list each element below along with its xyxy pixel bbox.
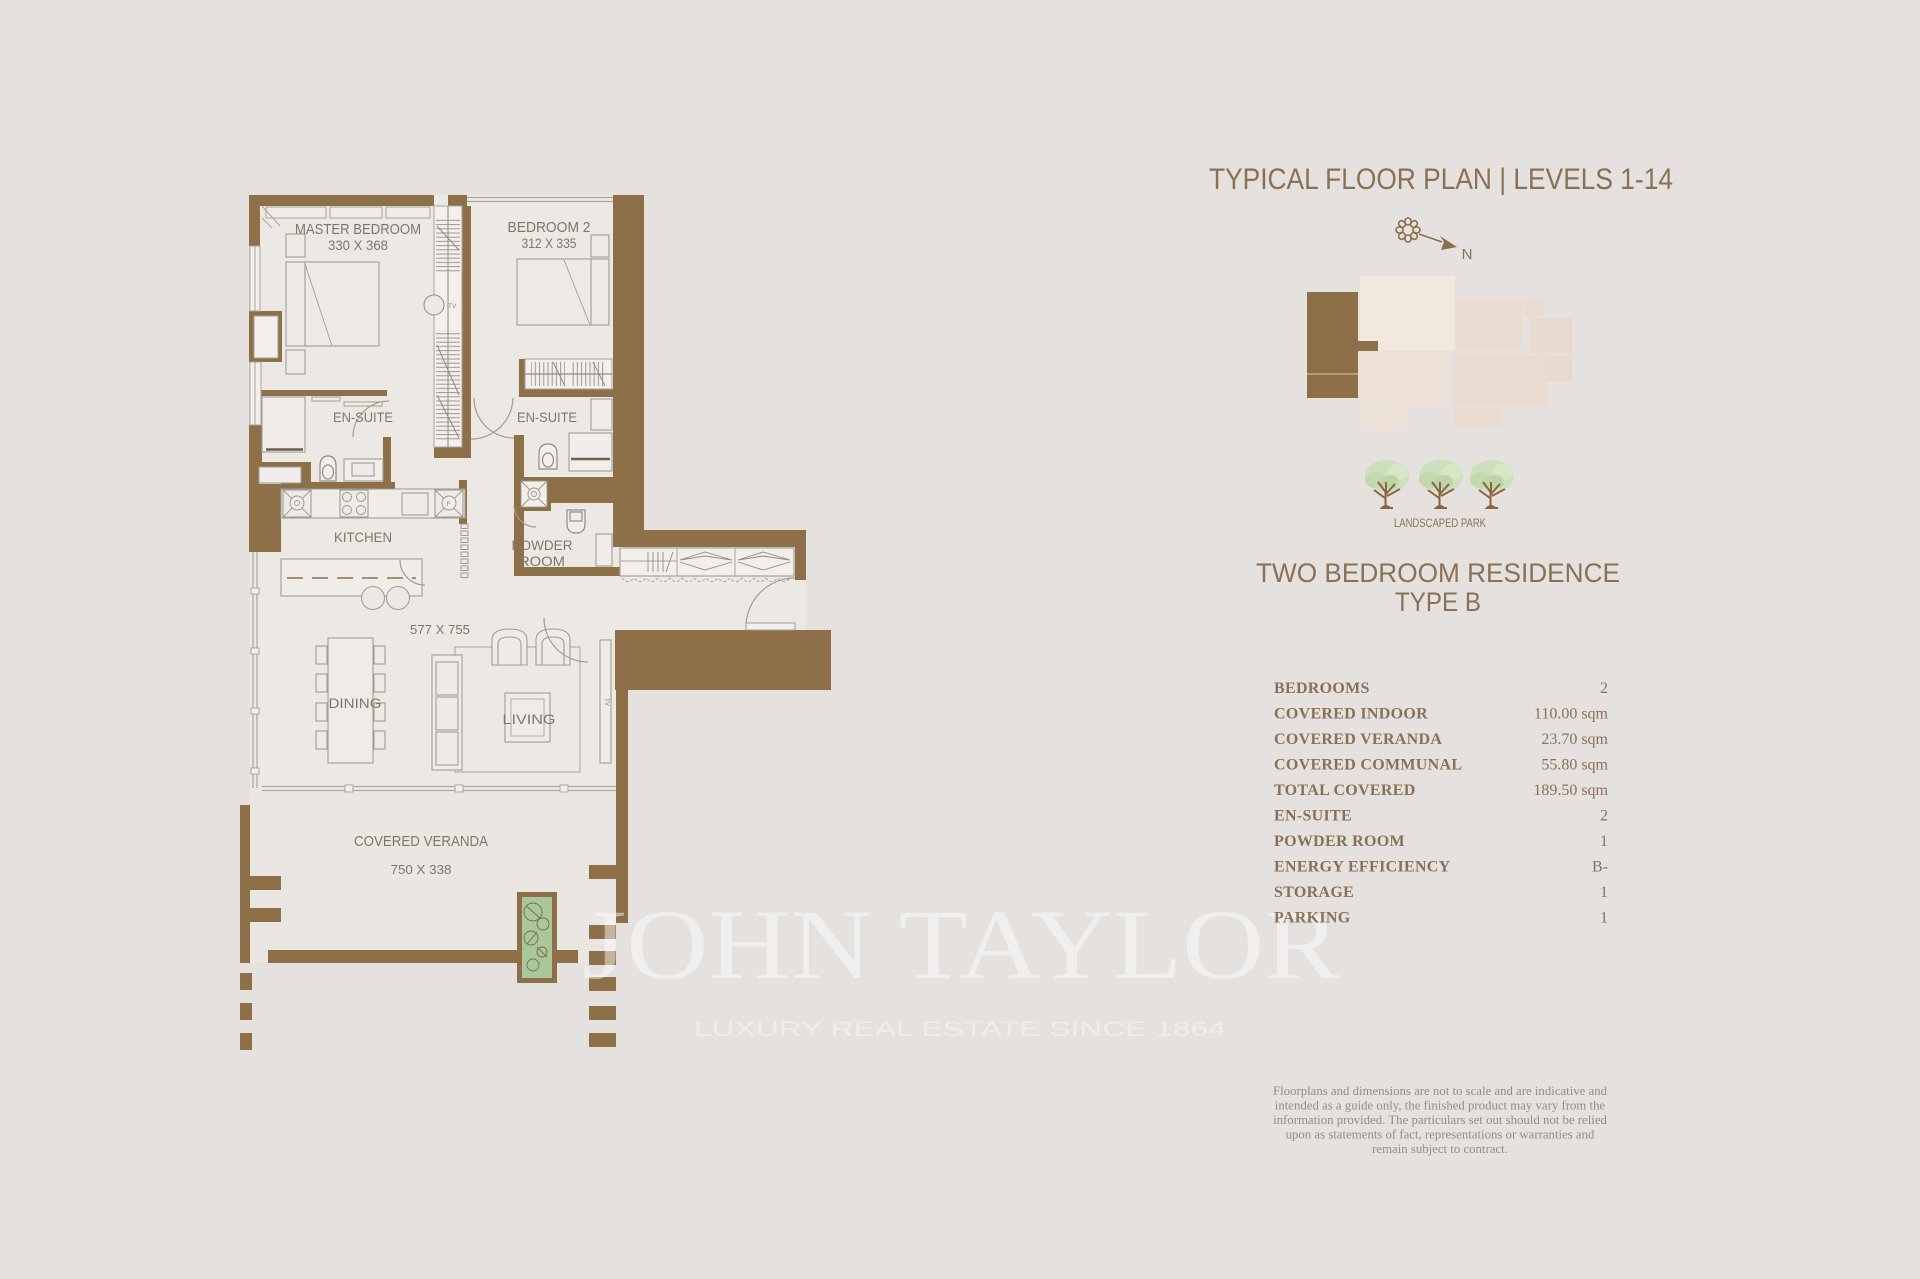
svg-text:TOTAL COVERED: TOTAL COVERED xyxy=(1274,782,1416,799)
svg-text:STORAGE: STORAGE xyxy=(1274,884,1354,901)
svg-text:LUXURY REAL ESTATE SINCE 1864: LUXURY REAL ESTATE SINCE 1864 xyxy=(694,1018,1226,1041)
svg-text:LANDSCAPED PARK: LANDSCAPED PARK xyxy=(1394,518,1486,530)
svg-text:577 X 755: 577 X 755 xyxy=(410,622,470,637)
svg-text:189.50 sqm: 189.50 sqm xyxy=(1533,782,1608,799)
svg-text:upon as statements of fact, re: upon as statements of fact, representati… xyxy=(1286,1128,1595,1142)
svg-text:23.70 sqm: 23.70 sqm xyxy=(1541,731,1608,748)
svg-text:intended as a guide only, the: intended as a guide only, the finished p… xyxy=(1275,1099,1606,1113)
svg-text:N: N xyxy=(1462,246,1473,263)
svg-text:PARKING: PARKING xyxy=(1274,910,1351,927)
svg-text:EN-SUITE: EN-SUITE xyxy=(1274,808,1352,825)
svg-text:KITCHEN: KITCHEN xyxy=(334,529,392,545)
svg-text:BEDROOM 2: BEDROOM 2 xyxy=(508,219,591,236)
svg-text:ENERGY EFFICIENCY: ENERGY EFFICIENCY xyxy=(1274,859,1451,876)
svg-text:COVERED VERANDA: COVERED VERANDA xyxy=(354,833,488,850)
svg-text:COVERED COMMUNAL: COVERED COMMUNAL xyxy=(1274,757,1462,774)
svg-text:EN-SUITE: EN-SUITE xyxy=(333,409,393,425)
svg-text:1: 1 xyxy=(1600,884,1608,901)
svg-text:COVERED INDOOR: COVERED INDOOR xyxy=(1274,706,1428,723)
svg-text:TWO BEDROOM RESIDENCE: TWO BEDROOM RESIDENCE xyxy=(1256,558,1620,588)
svg-text:DINING: DINING xyxy=(329,695,382,711)
svg-text:55.80 sqm: 55.80 sqm xyxy=(1541,757,1608,774)
svg-text:POWDER: POWDER xyxy=(512,538,573,553)
svg-text:COVERED VERANDA: COVERED VERANDA xyxy=(1274,731,1442,748)
svg-text:information provided. The part: information provided. The particulars se… xyxy=(1273,1113,1607,1127)
svg-text:Floorplans and dimensions are: Floorplans and dimensions are not to sca… xyxy=(1273,1084,1608,1098)
svg-text:F: F xyxy=(447,501,451,508)
svg-text:2: 2 xyxy=(1600,808,1608,825)
svg-text:2: 2 xyxy=(1600,680,1608,697)
svg-text:TV: TV xyxy=(448,303,457,310)
svg-text:POWDER ROOM: POWDER ROOM xyxy=(1274,833,1405,850)
svg-text:750 X 338: 750 X 338 xyxy=(391,862,452,877)
svg-text:330 X 368: 330 X 368 xyxy=(328,238,388,253)
svg-text:MASTER BEDROOM: MASTER BEDROOM xyxy=(295,221,421,238)
svg-text:ROOM: ROOM xyxy=(519,554,565,569)
svg-text:remain subject to contract.: remain subject to contract. xyxy=(1372,1142,1508,1156)
svg-text:1: 1 xyxy=(1600,833,1608,850)
svg-text:B-: B- xyxy=(1592,859,1608,876)
svg-text:LIVING: LIVING xyxy=(503,711,556,727)
svg-text:TYPE B: TYPE B xyxy=(1395,587,1481,617)
svg-text:1: 1 xyxy=(1600,910,1608,927)
svg-text:110.00 sqm: 110.00 sqm xyxy=(1534,706,1609,723)
svg-text:JOHN TAYLOR: JOHN TAYLOR xyxy=(582,889,1340,1000)
svg-text:BEDROOMS: BEDROOMS xyxy=(1274,680,1370,697)
svg-text:EN-SUITE: EN-SUITE xyxy=(517,409,577,425)
svg-text:TV: TV xyxy=(603,698,609,706)
svg-text:TYPICAL FLOOR PLAN | LEVELS 1-: TYPICAL FLOOR PLAN | LEVELS 1-14 xyxy=(1209,163,1673,196)
svg-text:312 X 335: 312 X 335 xyxy=(522,236,577,251)
